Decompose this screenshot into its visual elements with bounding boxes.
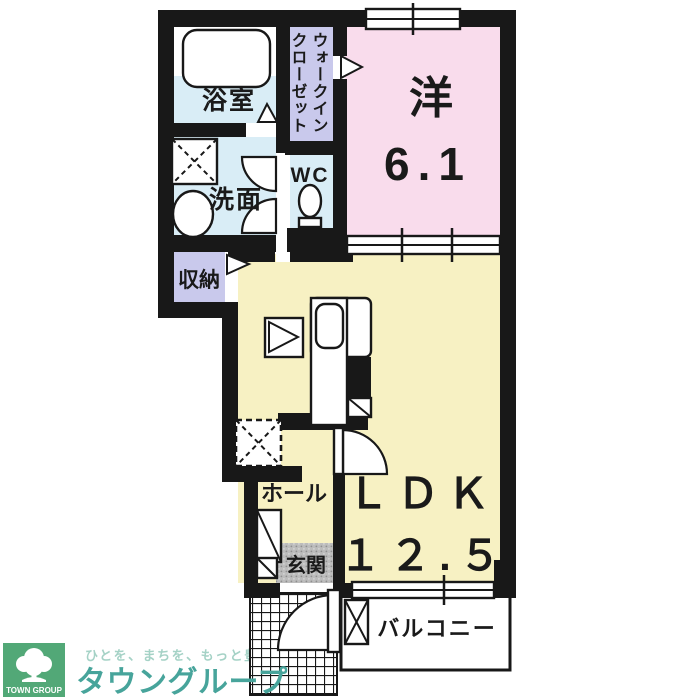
kitchen-sink-icon [316, 304, 343, 348]
western-room-size: 6.1 [384, 138, 472, 190]
bathtub-icon [183, 30, 270, 87]
wall-wic-right-upper [333, 10, 347, 56]
floorplan-drawing: ひとを、まちを、もっと豊かに [0, 0, 700, 700]
shoe-cabinet-icon [257, 510, 281, 578]
ldk-label: ＬＤＫ [347, 470, 497, 517]
washroom-label: 洗面 [209, 186, 263, 214]
wall-fridge-left [222, 420, 236, 466]
wall-bath-washroom [158, 123, 246, 137]
hall-label: ホール [261, 481, 327, 506]
wall-fridge-bottom [222, 466, 302, 482]
wall-entrance-left [244, 583, 280, 598]
washing-machine-box-icon [172, 139, 217, 184]
washbasin-icon [173, 191, 213, 237]
bathroom-label: 浴室 [202, 86, 256, 115]
wall-ldk-left [222, 302, 238, 420]
toilet-icon [299, 185, 321, 227]
logo-text: TOWN GROUP [6, 686, 63, 695]
wic-label-line2: クローゼット [289, 32, 308, 134]
floorplan-page: ひとを、まちを、もっと豊かに [0, 0, 700, 700]
ldk-hall-door-leaf [334, 428, 343, 474]
storage-label: 収納 [178, 268, 220, 292]
wall-kitchen-stub [347, 357, 371, 398]
western-room-label: 洋 [409, 74, 453, 123]
wall-wic-right-lower [333, 79, 347, 245]
wc-label: WC [291, 164, 330, 187]
company-name: タウングループ [76, 666, 288, 699]
wall-ldk-top-right [290, 245, 353, 262]
kitchen-corner-box [348, 398, 371, 417]
wic-label-line1: ウォークイン [310, 32, 328, 134]
balcony-label: バルコニー [377, 616, 497, 641]
entrance-door-leaf [328, 590, 340, 652]
ldk-size: １２.５ [339, 532, 509, 579]
refrigerator-space-icon [236, 420, 281, 466]
western-room-floor [345, 24, 500, 236]
wall-right [500, 10, 516, 598]
entrance-label: 玄関 [286, 553, 326, 577]
stove-icon [265, 318, 303, 357]
